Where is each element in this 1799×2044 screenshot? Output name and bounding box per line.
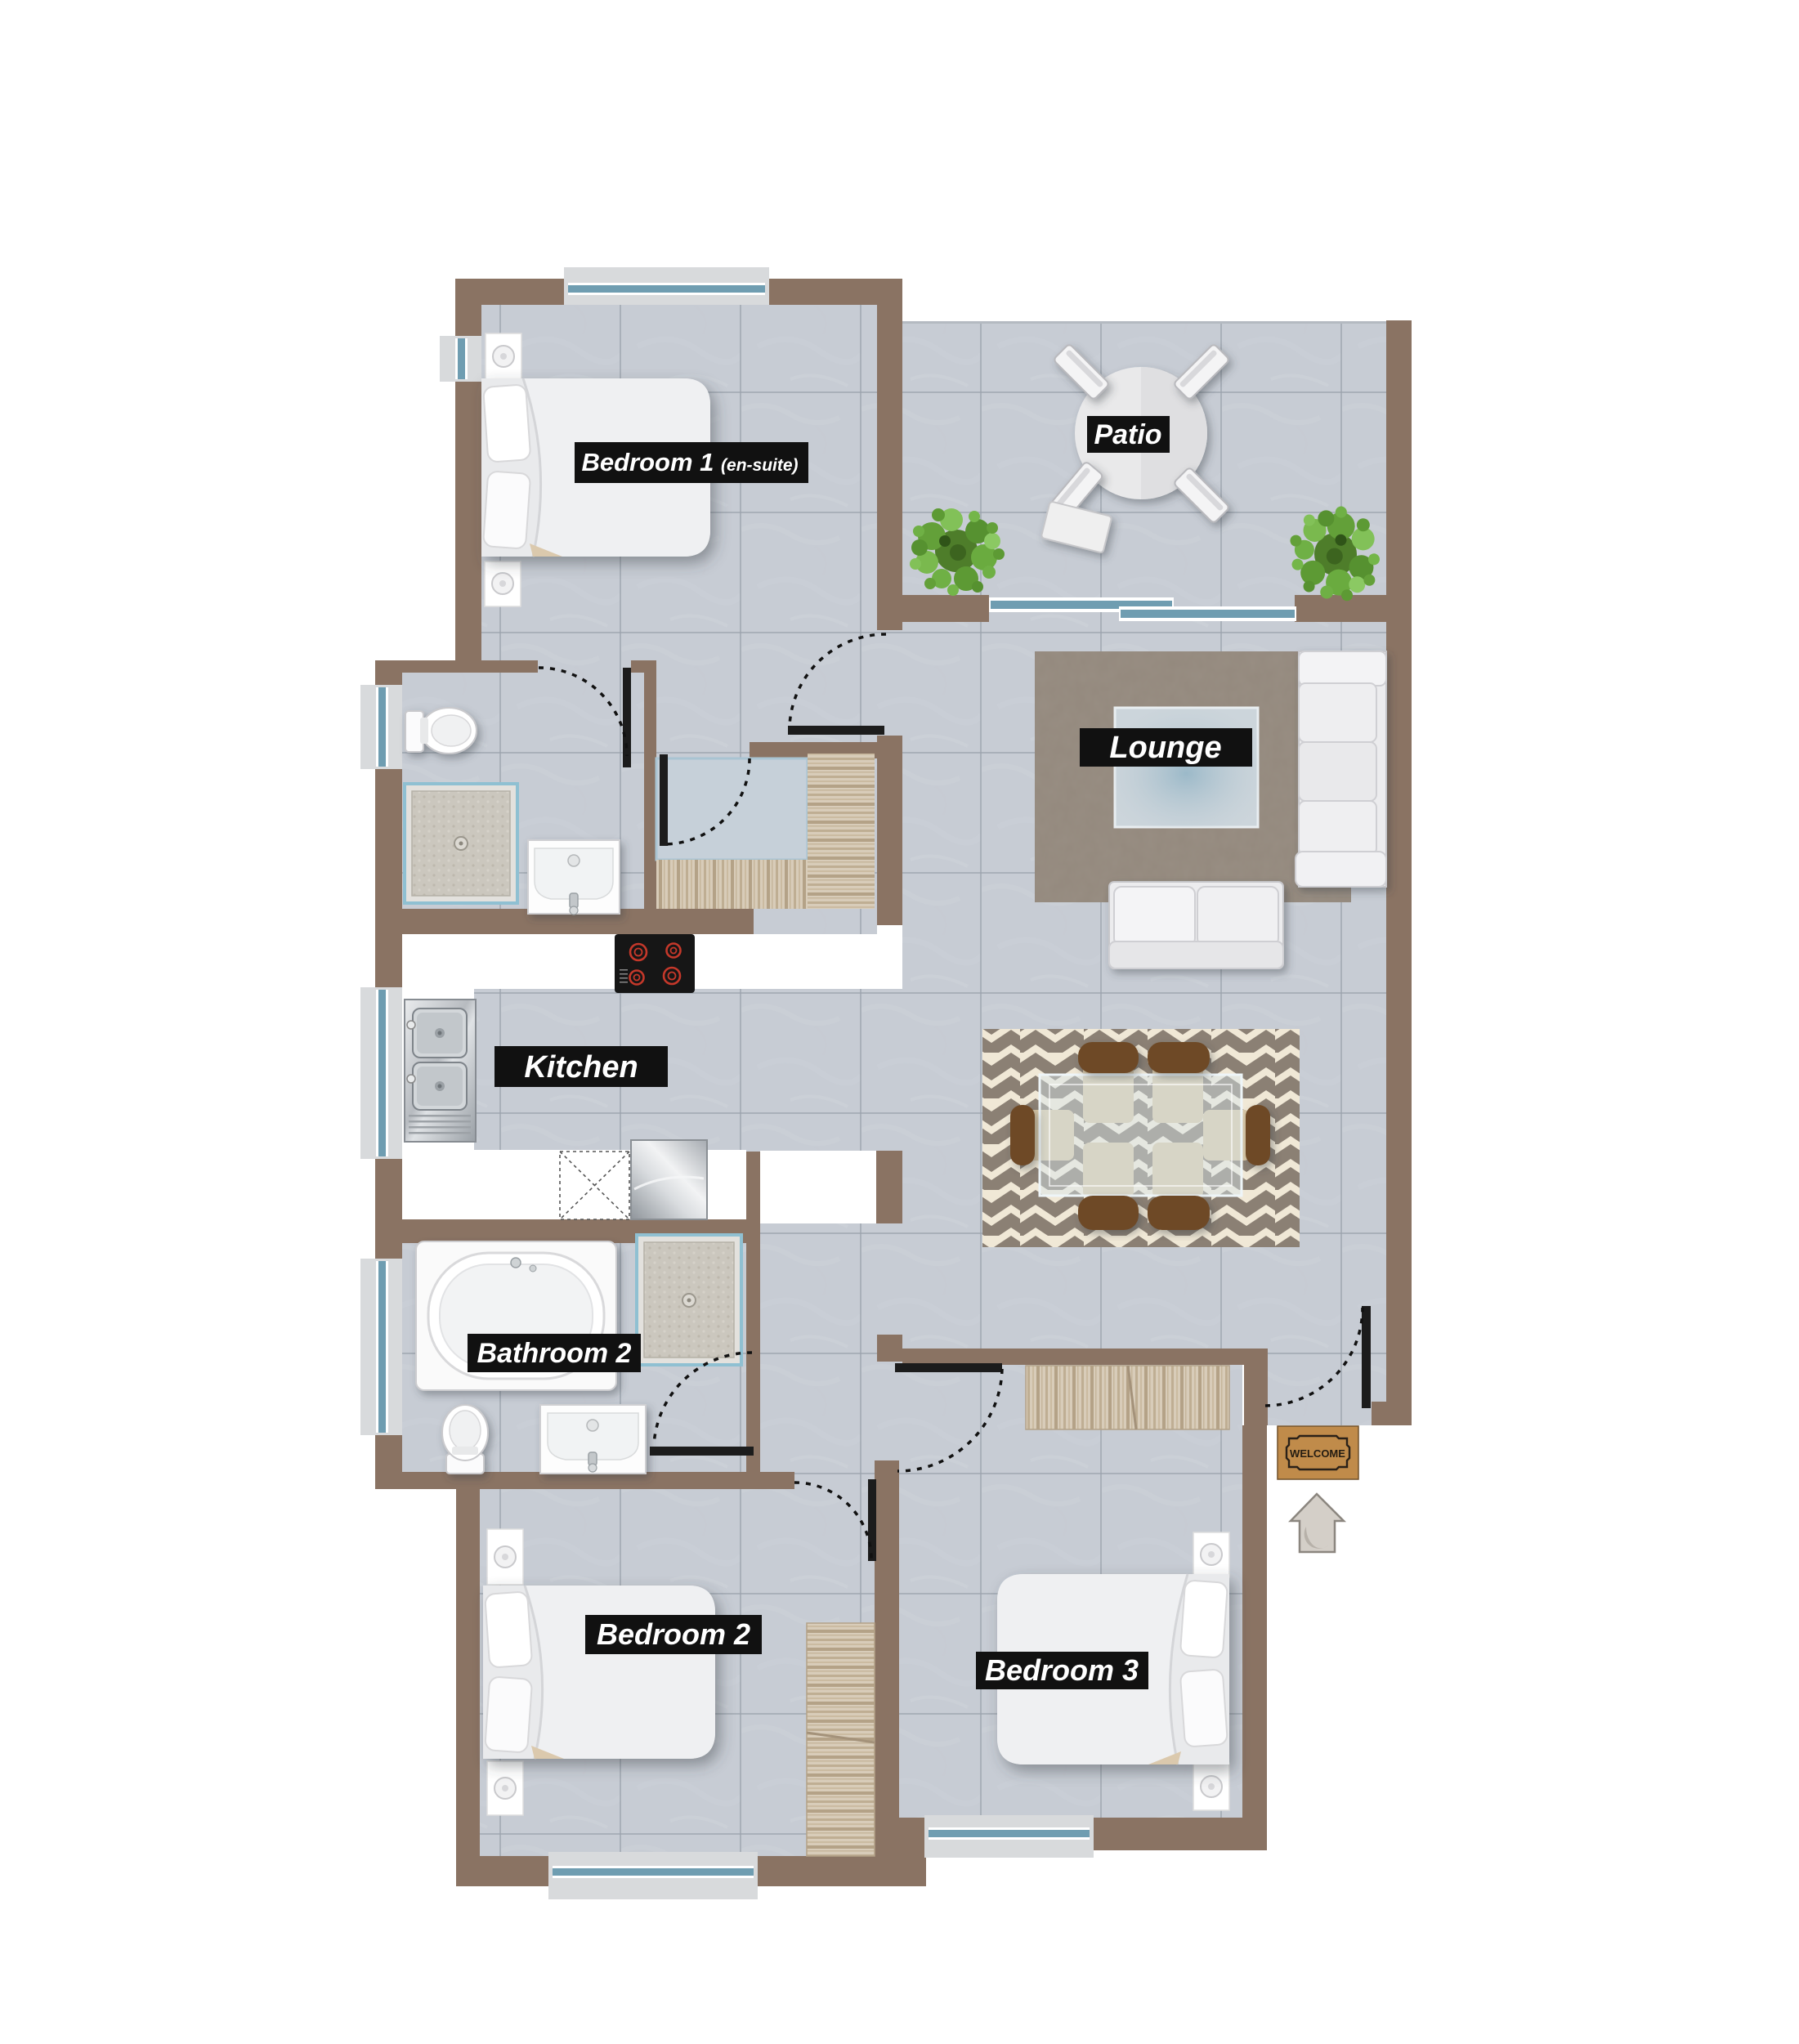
svg-text:Patio: Patio: [1094, 419, 1161, 450]
svg-text:Bedroom 2: Bedroom 2: [597, 1617, 750, 1651]
svg-text:Bedroom 3: Bedroom 3: [985, 1653, 1139, 1687]
svg-text:Bathroom 2: Bathroom 2: [477, 1338, 632, 1369]
svg-text:Kitchen: Kitchen: [524, 1050, 638, 1085]
svg-text:WELCOME: WELCOME: [1290, 1447, 1345, 1460]
svg-text:Lounge: Lounge: [1109, 731, 1221, 765]
